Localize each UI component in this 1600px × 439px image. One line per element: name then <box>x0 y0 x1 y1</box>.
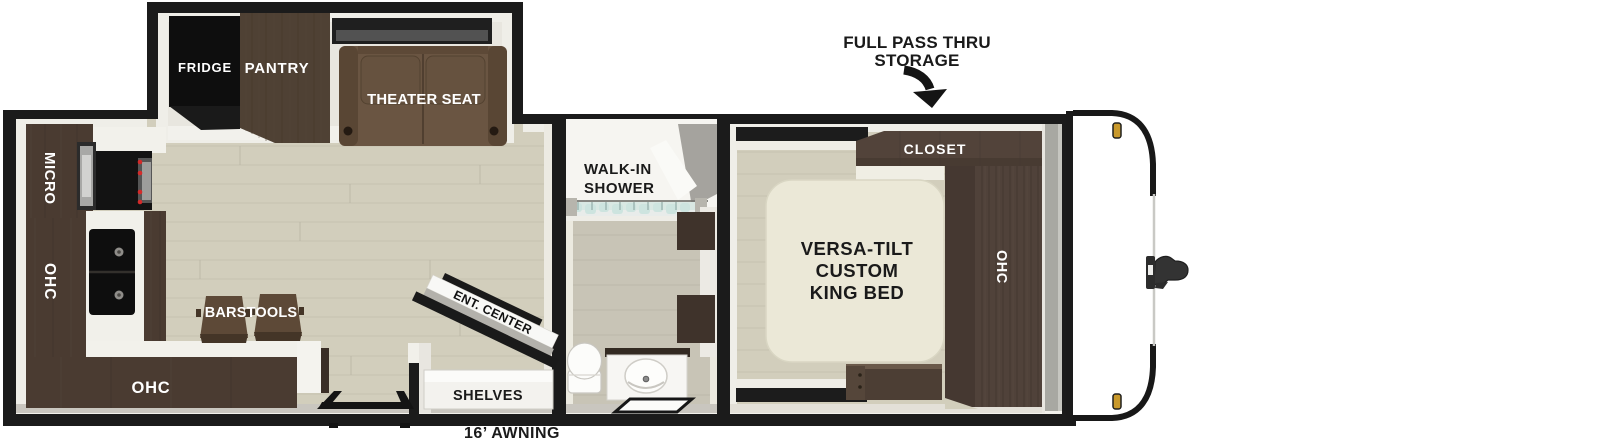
svg-text:WALK-IN: WALK-IN <box>584 161 652 178</box>
svg-text:BARSTOOLS: BARSTOOLS <box>205 305 298 321</box>
svg-text:MICRO: MICRO <box>41 152 58 205</box>
svg-text:SHOWER: SHOWER <box>584 180 655 197</box>
svg-text:PANTRY: PANTRY <box>245 60 310 77</box>
svg-text:FULL PASS THRU: FULL PASS THRU <box>843 33 991 52</box>
svg-text:OHC: OHC <box>131 379 170 397</box>
svg-text:STORAGE: STORAGE <box>874 51 959 70</box>
svg-text:16’ AWNING: 16’ AWNING <box>464 425 560 439</box>
svg-text:CLOSET: CLOSET <box>904 141 967 157</box>
svg-text:CUSTOM: CUSTOM <box>816 260 899 281</box>
svg-text:OHC: OHC <box>993 250 1009 284</box>
svg-text:THEATER SEAT: THEATER SEAT <box>367 92 481 108</box>
svg-text:SHELVES: SHELVES <box>453 388 523 404</box>
svg-text:VERSA-TILT: VERSA-TILT <box>801 238 914 259</box>
svg-text:KING BED: KING BED <box>810 282 904 303</box>
svg-text:OHC: OHC <box>41 263 58 300</box>
svg-text:FRIDGE: FRIDGE <box>178 60 232 75</box>
